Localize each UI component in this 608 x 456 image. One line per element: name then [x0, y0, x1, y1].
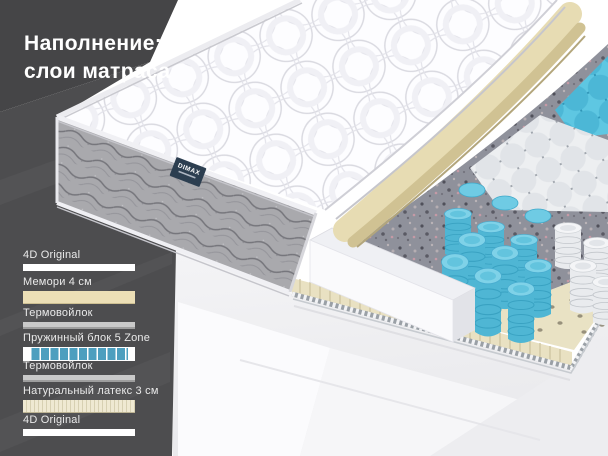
layer-swatch-felt [23, 322, 135, 329]
layer-label: Пружинный блок 5 Zone [23, 332, 153, 344]
title-line-2: слои матраса [24, 58, 170, 86]
layer-swatch-springs [23, 347, 135, 361]
legend-row: Термовойлок [23, 360, 153, 382]
layer-label: Термовойлок [23, 307, 153, 319]
layer-swatch-memory-foam [23, 291, 135, 304]
legend-row: Мемори 4 см [23, 276, 153, 304]
mattress-layers-infographic: DIMAX Наполнение: слои матраса 4D Origin… [0, 0, 608, 456]
legend-row: Пружинный блок 5 Zone [23, 332, 153, 361]
layer-label: 4D Original [23, 414, 153, 426]
layer-label: Мемори 4 см [23, 276, 153, 288]
layer-swatch-fabric-bottom [23, 429, 135, 436]
legend-row: Натуральный латекс 3 см [23, 385, 153, 413]
layer-swatch-latex [23, 400, 135, 413]
layer-swatch-felt [23, 375, 135, 382]
legend-row: 4D Original [23, 414, 153, 436]
legend-row: 4D Original [23, 249, 153, 271]
title-line-1: Наполнение: [24, 30, 170, 58]
page-title: Наполнение: слои матраса [24, 30, 170, 85]
legend-row: Термовойлок [23, 307, 153, 329]
layer-label: Термовойлок [23, 360, 153, 372]
layer-label: Натуральный латекс 3 см [23, 385, 153, 397]
layer-label: 4D Original [23, 249, 153, 261]
layer-swatch-fabric-top [23, 264, 135, 271]
